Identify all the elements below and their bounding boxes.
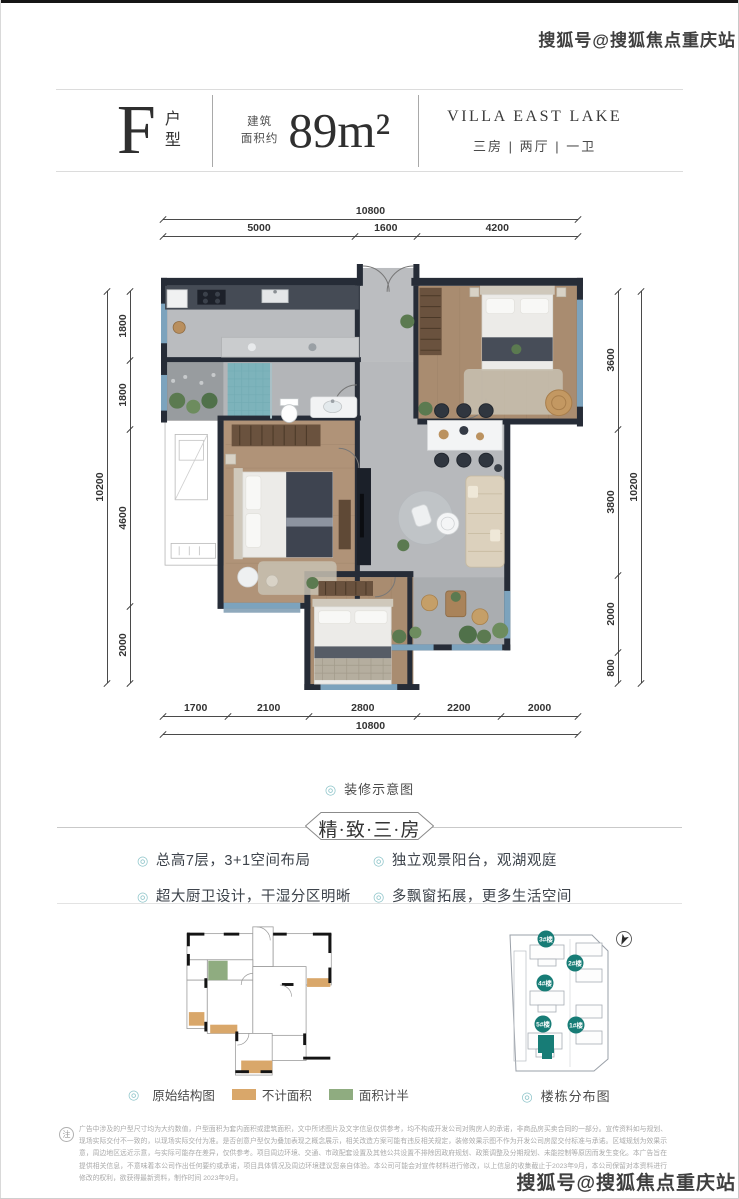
floorplan-render (161, 264, 585, 690)
ring-bullet-icon: ◎ (128, 1087, 139, 1103)
area-value: 89m² (288, 106, 390, 156)
ring-bullet-icon: ◎ (373, 889, 385, 904)
tan-swatch (232, 1089, 256, 1100)
unit-letter: F (117, 99, 156, 163)
plan-caption-text: 装修示意图 (344, 782, 414, 797)
compass-icon (617, 932, 632, 947)
unit-label: 户型 (165, 110, 184, 152)
green-swatch (329, 1089, 353, 1100)
disclaimer-text: 广告中涉及的户型尺寸均为大约数值，户型面积为套内面积或建筑面积，文中所述图片及文… (79, 1124, 667, 1185)
dim-label: 2200 (417, 702, 502, 714)
badge-2: 2#楼 (568, 958, 582, 967)
dim-label: 1800 (117, 383, 129, 406)
dim-label: 2800 (309, 702, 417, 714)
half-area-patch (208, 961, 227, 980)
dim-top-total: 10800 (163, 206, 578, 222)
section-title-badge: 精·致·三·房 (305, 812, 434, 840)
dim-label: 2100 (228, 702, 309, 714)
dim-label: 5000 (163, 222, 355, 234)
features-bottom-rule (57, 903, 682, 904)
legend-caption: ◎ 原始结构图 (128, 1085, 215, 1104)
page-top-border (0, 0, 739, 3)
plan-caption: ◎装修示意图 (0, 779, 739, 798)
dim-label: 10800 (163, 720, 578, 732)
dim-label: 4600 (117, 506, 129, 529)
dim-label: 1800 (117, 314, 129, 337)
ring-bullet-icon: ◎ (521, 1089, 533, 1104)
dim-label: 2000 (605, 602, 617, 625)
project-name: VILLA EAST LAKE (447, 108, 622, 126)
structural-plan (185, 924, 340, 1076)
feature-item: ◎独立观景阳台，观湖观庭 (373, 849, 605, 870)
dim-left-total: 10200 (99, 291, 115, 683)
structural-plan-svg (185, 924, 340, 1076)
floorplan-poster-page: 搜狐号@搜狐焦点重庆站 搜狐号@搜狐焦点重庆站 F 户型 建筑 面积约 89m²… (0, 0, 739, 1199)
feature-list: ◎总高7层，3+1空间布局 ◎独立观景阳台，观湖观庭 ◎超大厨卫设计，干湿分区明… (137, 849, 605, 906)
header-divider-1 (212, 95, 213, 167)
header-divider-2 (418, 95, 419, 167)
tv-wall (357, 468, 371, 565)
structure-rooms (187, 927, 331, 1075)
header: F 户型 建筑 面积约 89m² VILLA EAST LAKE 三房 | 两厅… (0, 94, 739, 168)
dim-label: 10200 (94, 472, 106, 501)
area-prefix-line1: 建筑 (247, 116, 272, 128)
badge-4: 4#楼 (538, 978, 552, 987)
area-prefix: 建筑 面积约 (241, 114, 279, 149)
dim-label: 1600 (355, 222, 417, 234)
ring-bullet-icon: ◎ (373, 853, 385, 868)
dim-right-segments: 3600 3800 2000 800 (610, 291, 626, 683)
feature-text: 总高7层，3+1空间布局 (156, 853, 311, 869)
dim-right-total: 10200 (633, 291, 649, 683)
legend-item-half: 面积计半 (329, 1085, 409, 1104)
badge-5: 5#楼 (536, 1019, 550, 1028)
feature-text: 独立观景阳台，观湖观庭 (392, 853, 557, 869)
header-bottom-rule (56, 171, 683, 172)
ring-bullet-icon: ◎ (137, 889, 149, 904)
dim-label: 3600 (605, 349, 617, 372)
legend-item-excluded: 不计面积 (232, 1085, 312, 1104)
dim-label: 2000 (501, 702, 578, 714)
dim-label: 10200 (628, 472, 640, 501)
section-title: 精·致·三·房 (305, 815, 434, 842)
note-icon: 注 (59, 1127, 74, 1142)
legend-label: 不计面积 (262, 1085, 312, 1104)
structural-legend: ◎ 原始结构图 不计面积 面积计半 (128, 1085, 409, 1104)
site-plan-svg: 3#楼 2#楼 4#楼 5#楼 1#楼 (496, 927, 636, 1077)
dim-label: 3800 (605, 491, 617, 514)
ring-bullet-icon: ◎ (325, 782, 337, 797)
dim-label: 1700 (163, 702, 228, 714)
dim-label: 800 (605, 659, 617, 677)
site-caption-text: 楼栋分布图 (541, 1089, 611, 1104)
dim-label: 2000 (117, 633, 129, 656)
site-plan-caption: ◎楼栋分布图 (496, 1086, 636, 1105)
area-prefix-line2: 面积约 (241, 133, 279, 145)
badge-1: 1#楼 (569, 1020, 583, 1029)
badge-3: 3#楼 (539, 934, 553, 943)
site-plan: 3#楼 2#楼 4#楼 5#楼 1#楼 (496, 927, 636, 1077)
header-top-rule (56, 89, 683, 90)
structural-caption-text: 原始结构图 (152, 1085, 215, 1104)
floorplan-svg (161, 264, 585, 690)
feature-item: ◎总高7层，3+1空间布局 (137, 849, 373, 870)
page-left-border (0, 0, 1, 1199)
plant (400, 315, 414, 329)
dining-furniture (428, 404, 503, 467)
dim-label: 4200 (417, 222, 579, 234)
dim-left-segments: 1800 1800 4600 2000 (122, 291, 138, 683)
dim-top-segments: 5000 1600 4200 (163, 223, 578, 239)
project-block: VILLA EAST LAKE 三房 | 两厅 | 一卫 (447, 108, 622, 155)
dim-bottom-total: 10800 (163, 721, 578, 737)
watermark-top: 搜狐号@搜狐焦点重庆站 (538, 26, 736, 51)
legend-label: 面积计半 (359, 1085, 409, 1104)
ring-bullet-icon: ◎ (137, 853, 149, 868)
dim-bottom-segments: 1700 2100 2800 2200 2000 (163, 703, 578, 719)
dim-label: 10800 (163, 205, 578, 217)
layout-spec: 三房 | 两厅 | 一卫 (447, 136, 622, 155)
